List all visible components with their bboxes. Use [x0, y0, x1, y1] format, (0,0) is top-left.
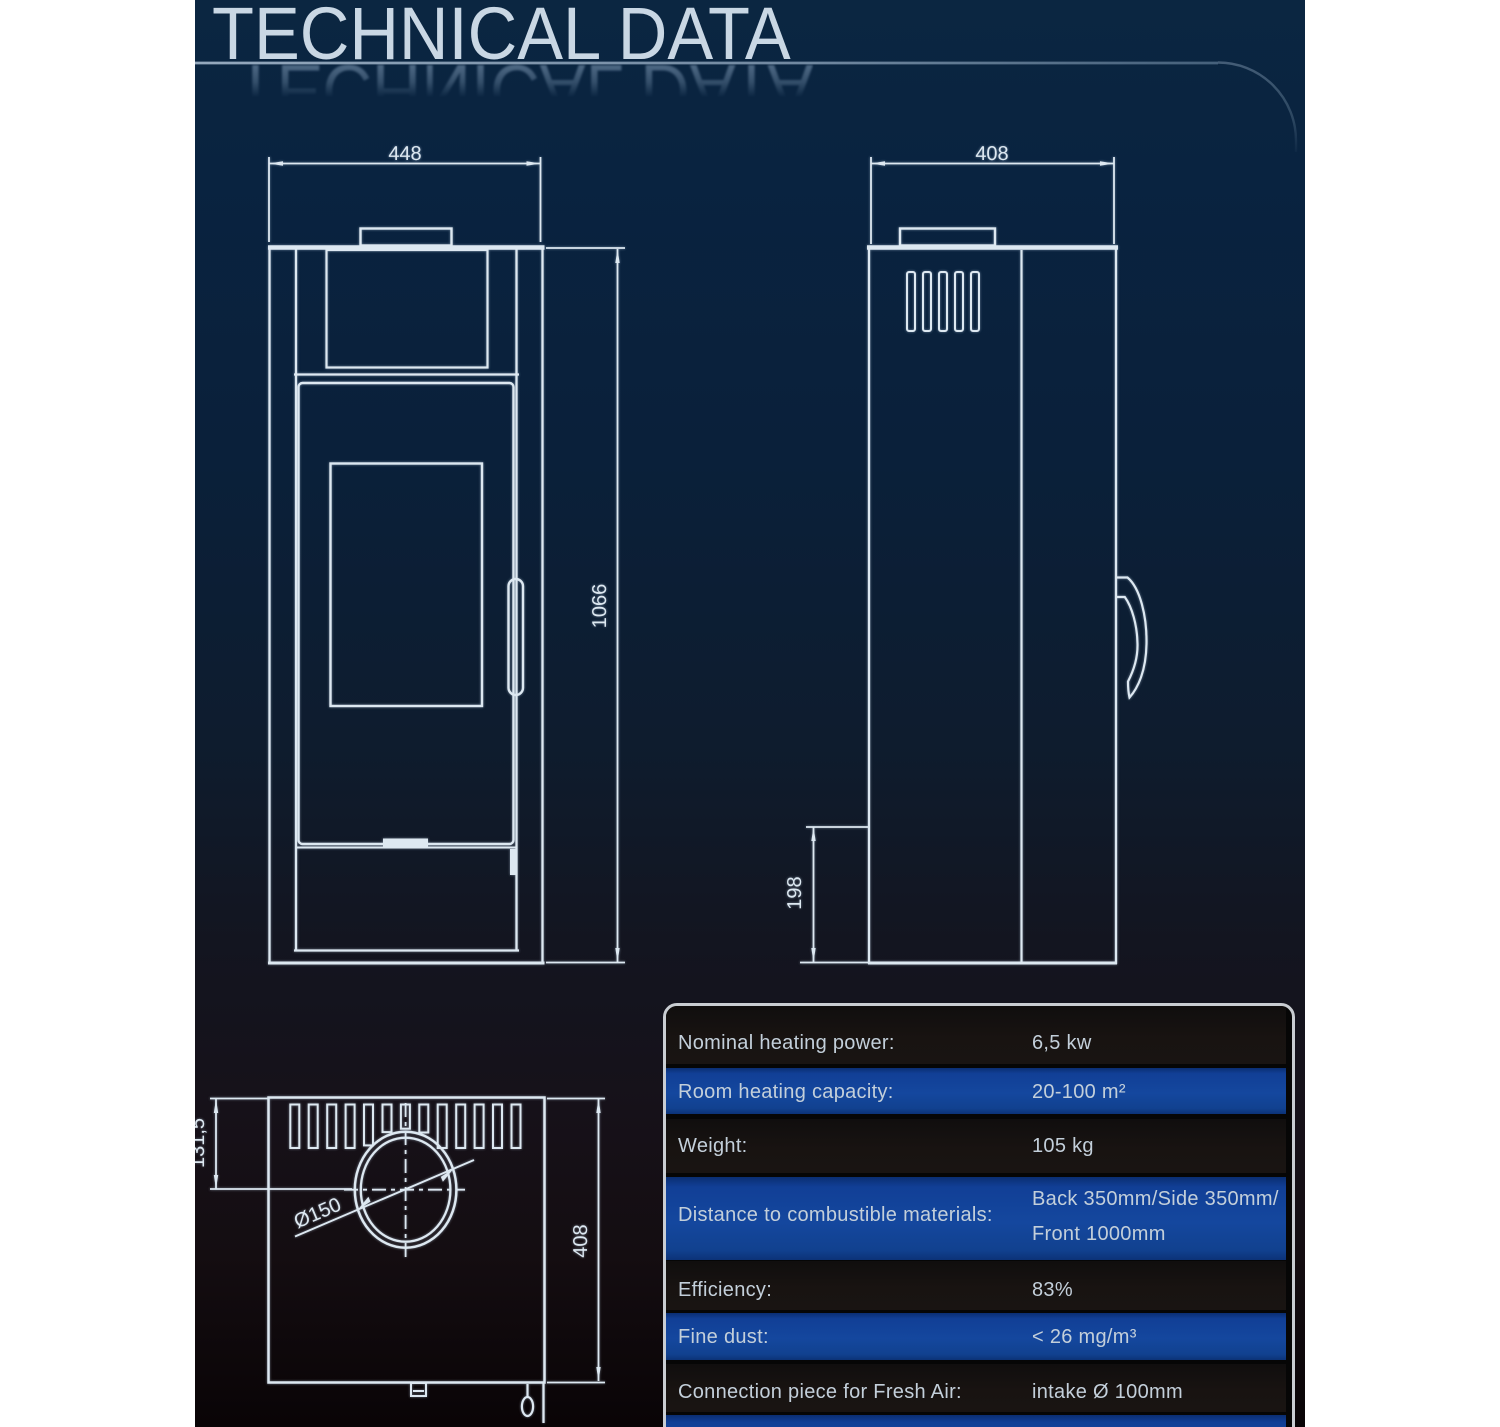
svg-text:1066: 1066	[589, 584, 611, 629]
svg-text:408: 408	[975, 143, 1008, 165]
svg-text:408: 408	[570, 1224, 592, 1257]
svg-text:131,5: 131,5	[195, 1118, 209, 1168]
svg-text:448: 448	[388, 143, 421, 165]
svg-text:198: 198	[784, 876, 806, 909]
